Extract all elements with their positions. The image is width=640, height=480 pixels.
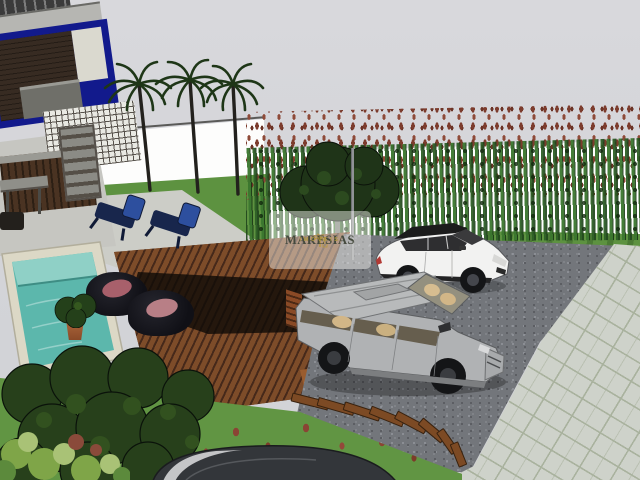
foreground-car xyxy=(146,444,404,480)
watermark-subtitle: IMÓVEIS xyxy=(299,237,340,243)
potted-plant xyxy=(48,288,104,328)
chair xyxy=(0,212,24,230)
sun-loungers xyxy=(78,184,218,256)
beanbag xyxy=(128,290,194,336)
corner-plants xyxy=(0,420,130,480)
palm-trees xyxy=(95,48,265,200)
rendering-scene: MARESIAS IMÓVEIS xyxy=(0,0,640,480)
beanbag-cushion xyxy=(100,277,133,301)
silver-suv xyxy=(290,270,515,400)
beanbag-cushion xyxy=(144,296,179,320)
watermark: MARESIAS IMÓVEIS xyxy=(269,211,371,269)
table-leg xyxy=(38,188,41,214)
